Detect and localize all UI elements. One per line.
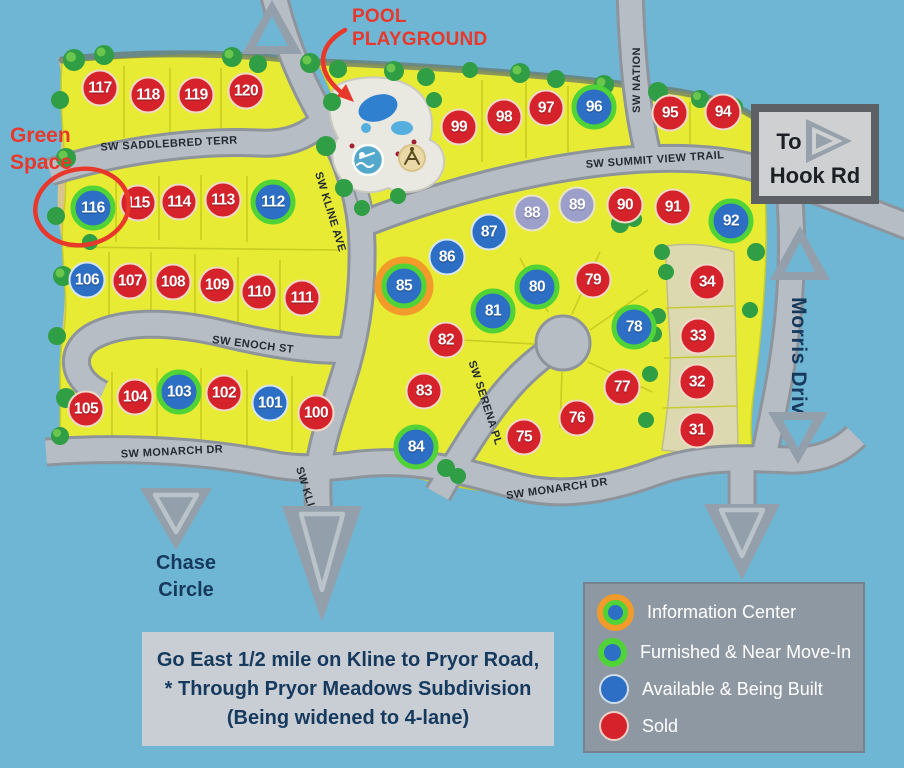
lot-78[interactable]: 78	[612, 305, 657, 350]
lot-number: 97	[538, 99, 554, 117]
legend-swatch-info-center	[603, 600, 628, 625]
lot-112[interactable]: 112	[251, 180, 296, 225]
lot-number: 110	[247, 283, 271, 301]
legend-label: Available & Being Built	[642, 679, 823, 700]
lot-number: 91	[665, 198, 681, 216]
directions-line-3: (Being widened to 4-lane)	[227, 704, 469, 733]
lot-100[interactable]: 100	[298, 395, 335, 432]
lot-34[interactable]: 34	[689, 264, 726, 301]
lot-75[interactable]: 75	[506, 419, 543, 456]
lot-119[interactable]: 119	[178, 77, 215, 114]
lot-number: 75	[516, 428, 532, 446]
lot-96[interactable]: 96	[572, 85, 617, 130]
legend-label: Sold	[642, 716, 678, 737]
lot-113[interactable]: 113	[205, 182, 242, 219]
subdivision-map: SW SADDLEBRED TERR SW KLINE AVE SW KLINE…	[0, 0, 904, 768]
lot-number: 104	[123, 388, 147, 406]
lot-number: 96	[586, 98, 602, 116]
lot-number: 86	[439, 248, 455, 266]
lot-85[interactable]: 85	[382, 264, 427, 309]
lot-82[interactable]: 82	[428, 322, 465, 359]
lot-95[interactable]: 95	[652, 95, 689, 132]
directions-box: Go East 1/2 mile on Kline to Pryor Road,…	[142, 632, 554, 746]
lot-number: 81	[485, 302, 501, 320]
lot-number: 89	[569, 196, 585, 214]
lot-32[interactable]: 32	[679, 364, 716, 401]
legend-label: Information Center	[647, 602, 796, 623]
legend-item-sold: Sold	[597, 711, 863, 741]
lot-number: 85	[396, 277, 412, 295]
lot-31[interactable]: 31	[679, 412, 716, 449]
legend-item-furnished: Furnished & Near Move-In	[597, 638, 863, 667]
pool-playground-label: POOL PLAYGROUND	[352, 6, 487, 52]
lot-97[interactable]: 97	[528, 90, 565, 127]
lot-number: 31	[689, 421, 705, 439]
lot-number: 114	[167, 193, 191, 211]
directions-line-2: * Through Pryor Meadows Subdivision	[165, 675, 532, 704]
lot-number: 78	[626, 318, 642, 336]
lot-number: 98	[496, 108, 512, 126]
hook-rd-to-text: To	[776, 129, 801, 154]
lot-107[interactable]: 107	[112, 263, 149, 300]
lot-76[interactable]: 76	[559, 400, 596, 437]
lot-114[interactable]: 114	[161, 184, 198, 221]
lot-number: 77	[614, 378, 630, 396]
lot-number: 118	[136, 86, 160, 104]
legend-swatch-available	[599, 674, 629, 704]
lot-number: 109	[205, 276, 229, 294]
lot-number: 107	[118, 272, 142, 290]
lot-number: 112	[261, 193, 285, 211]
lot-number: 115	[126, 194, 150, 212]
lot-102[interactable]: 102	[206, 375, 243, 412]
lot-number: 76	[569, 409, 585, 427]
lot-120[interactable]: 120	[228, 73, 265, 110]
lot-number: 113	[211, 191, 235, 209]
lot-number: 102	[212, 384, 236, 402]
legend-item-information-center: Information Center	[597, 594, 863, 631]
lot-86[interactable]: 86	[429, 239, 466, 276]
lot-115[interactable]: 115	[120, 185, 157, 222]
lot-number: 101	[258, 394, 282, 412]
lot-number: 83	[416, 382, 432, 400]
lot-103[interactable]: 103	[157, 370, 202, 415]
lot-number: 92	[723, 212, 739, 230]
lot-number: 117	[88, 79, 112, 97]
lot-108[interactable]: 108	[155, 264, 192, 301]
lot-81[interactable]: 81	[471, 289, 516, 334]
legend-panel: Information Center Furnished & Near Move…	[583, 582, 865, 753]
lot-88[interactable]: 88	[514, 195, 551, 232]
legend-item-available: Available & Being Built	[597, 674, 863, 704]
lot-90[interactable]: 90	[607, 187, 644, 224]
lot-89[interactable]: 89	[559, 187, 596, 224]
lot-116[interactable]: 116	[71, 186, 116, 231]
lot-number: 32	[689, 373, 705, 391]
lot-number: 87	[481, 223, 497, 241]
lot-number: 95	[662, 104, 678, 122]
lot-117[interactable]: 117	[82, 70, 119, 107]
lot-84[interactable]: 84	[394, 425, 439, 470]
hook-rd-arrow-icon	[804, 119, 854, 163]
lot-number: 116	[81, 199, 105, 217]
lot-number: 88	[524, 204, 540, 222]
green-space-label: Green Space	[10, 122, 72, 177]
hook-rd-name-text: Hook Rd	[770, 163, 860, 188]
lot-number: 94	[715, 103, 731, 121]
hook-rd-sign: To Hook Rd	[751, 104, 879, 204]
lot-98[interactable]: 98	[486, 99, 523, 136]
lot-118[interactable]: 118	[130, 77, 167, 114]
legend-label: Furnished & Near Move-In	[640, 642, 851, 663]
lot-87[interactable]: 87	[471, 214, 508, 251]
chase-circle-label: Chase Circle	[129, 550, 243, 604]
lot-109[interactable]: 109	[199, 267, 236, 304]
lot-92[interactable]: 92	[709, 199, 754, 244]
legend-swatch-sold	[599, 711, 629, 741]
legend-swatch-furnished	[598, 638, 627, 667]
lot-83[interactable]: 83	[406, 373, 443, 410]
lot-101[interactable]: 101	[252, 385, 289, 422]
lot-77[interactable]: 77	[604, 369, 641, 406]
lot-number: 84	[408, 438, 424, 456]
lot-number: 33	[690, 327, 706, 345]
lot-110[interactable]: 110	[241, 274, 278, 311]
lot-number: 79	[585, 271, 601, 289]
lot-105[interactable]: 105	[68, 391, 105, 428]
lot-33[interactable]: 33	[680, 318, 717, 355]
lot-number: 34	[699, 273, 715, 291]
lot-number: 120	[234, 82, 258, 100]
lot-number: 119	[184, 86, 208, 104]
lot-number: 105	[74, 400, 98, 418]
lot-number: 106	[75, 271, 99, 289]
lot-111[interactable]: 111	[284, 280, 321, 317]
lot-number: 103	[167, 383, 191, 401]
lot-80[interactable]: 80	[515, 265, 560, 310]
directions-line-1: Go East 1/2 mile on Kline to Pryor Road,	[157, 646, 539, 675]
lot-number: 99	[451, 118, 467, 136]
lot-79[interactable]: 79	[575, 262, 612, 299]
lot-number: 100	[304, 404, 328, 422]
lot-number: 111	[291, 289, 314, 307]
lot-104[interactable]: 104	[117, 379, 154, 416]
lot-number: 80	[529, 278, 545, 296]
lot-99[interactable]: 99	[441, 109, 478, 146]
lot-number: 82	[438, 331, 454, 349]
lot-106[interactable]: 106	[69, 262, 106, 299]
lot-number: 108	[161, 273, 185, 291]
lot-94[interactable]: 94	[705, 94, 742, 131]
lot-91[interactable]: 91	[655, 189, 692, 226]
lot-number: 90	[617, 196, 633, 214]
